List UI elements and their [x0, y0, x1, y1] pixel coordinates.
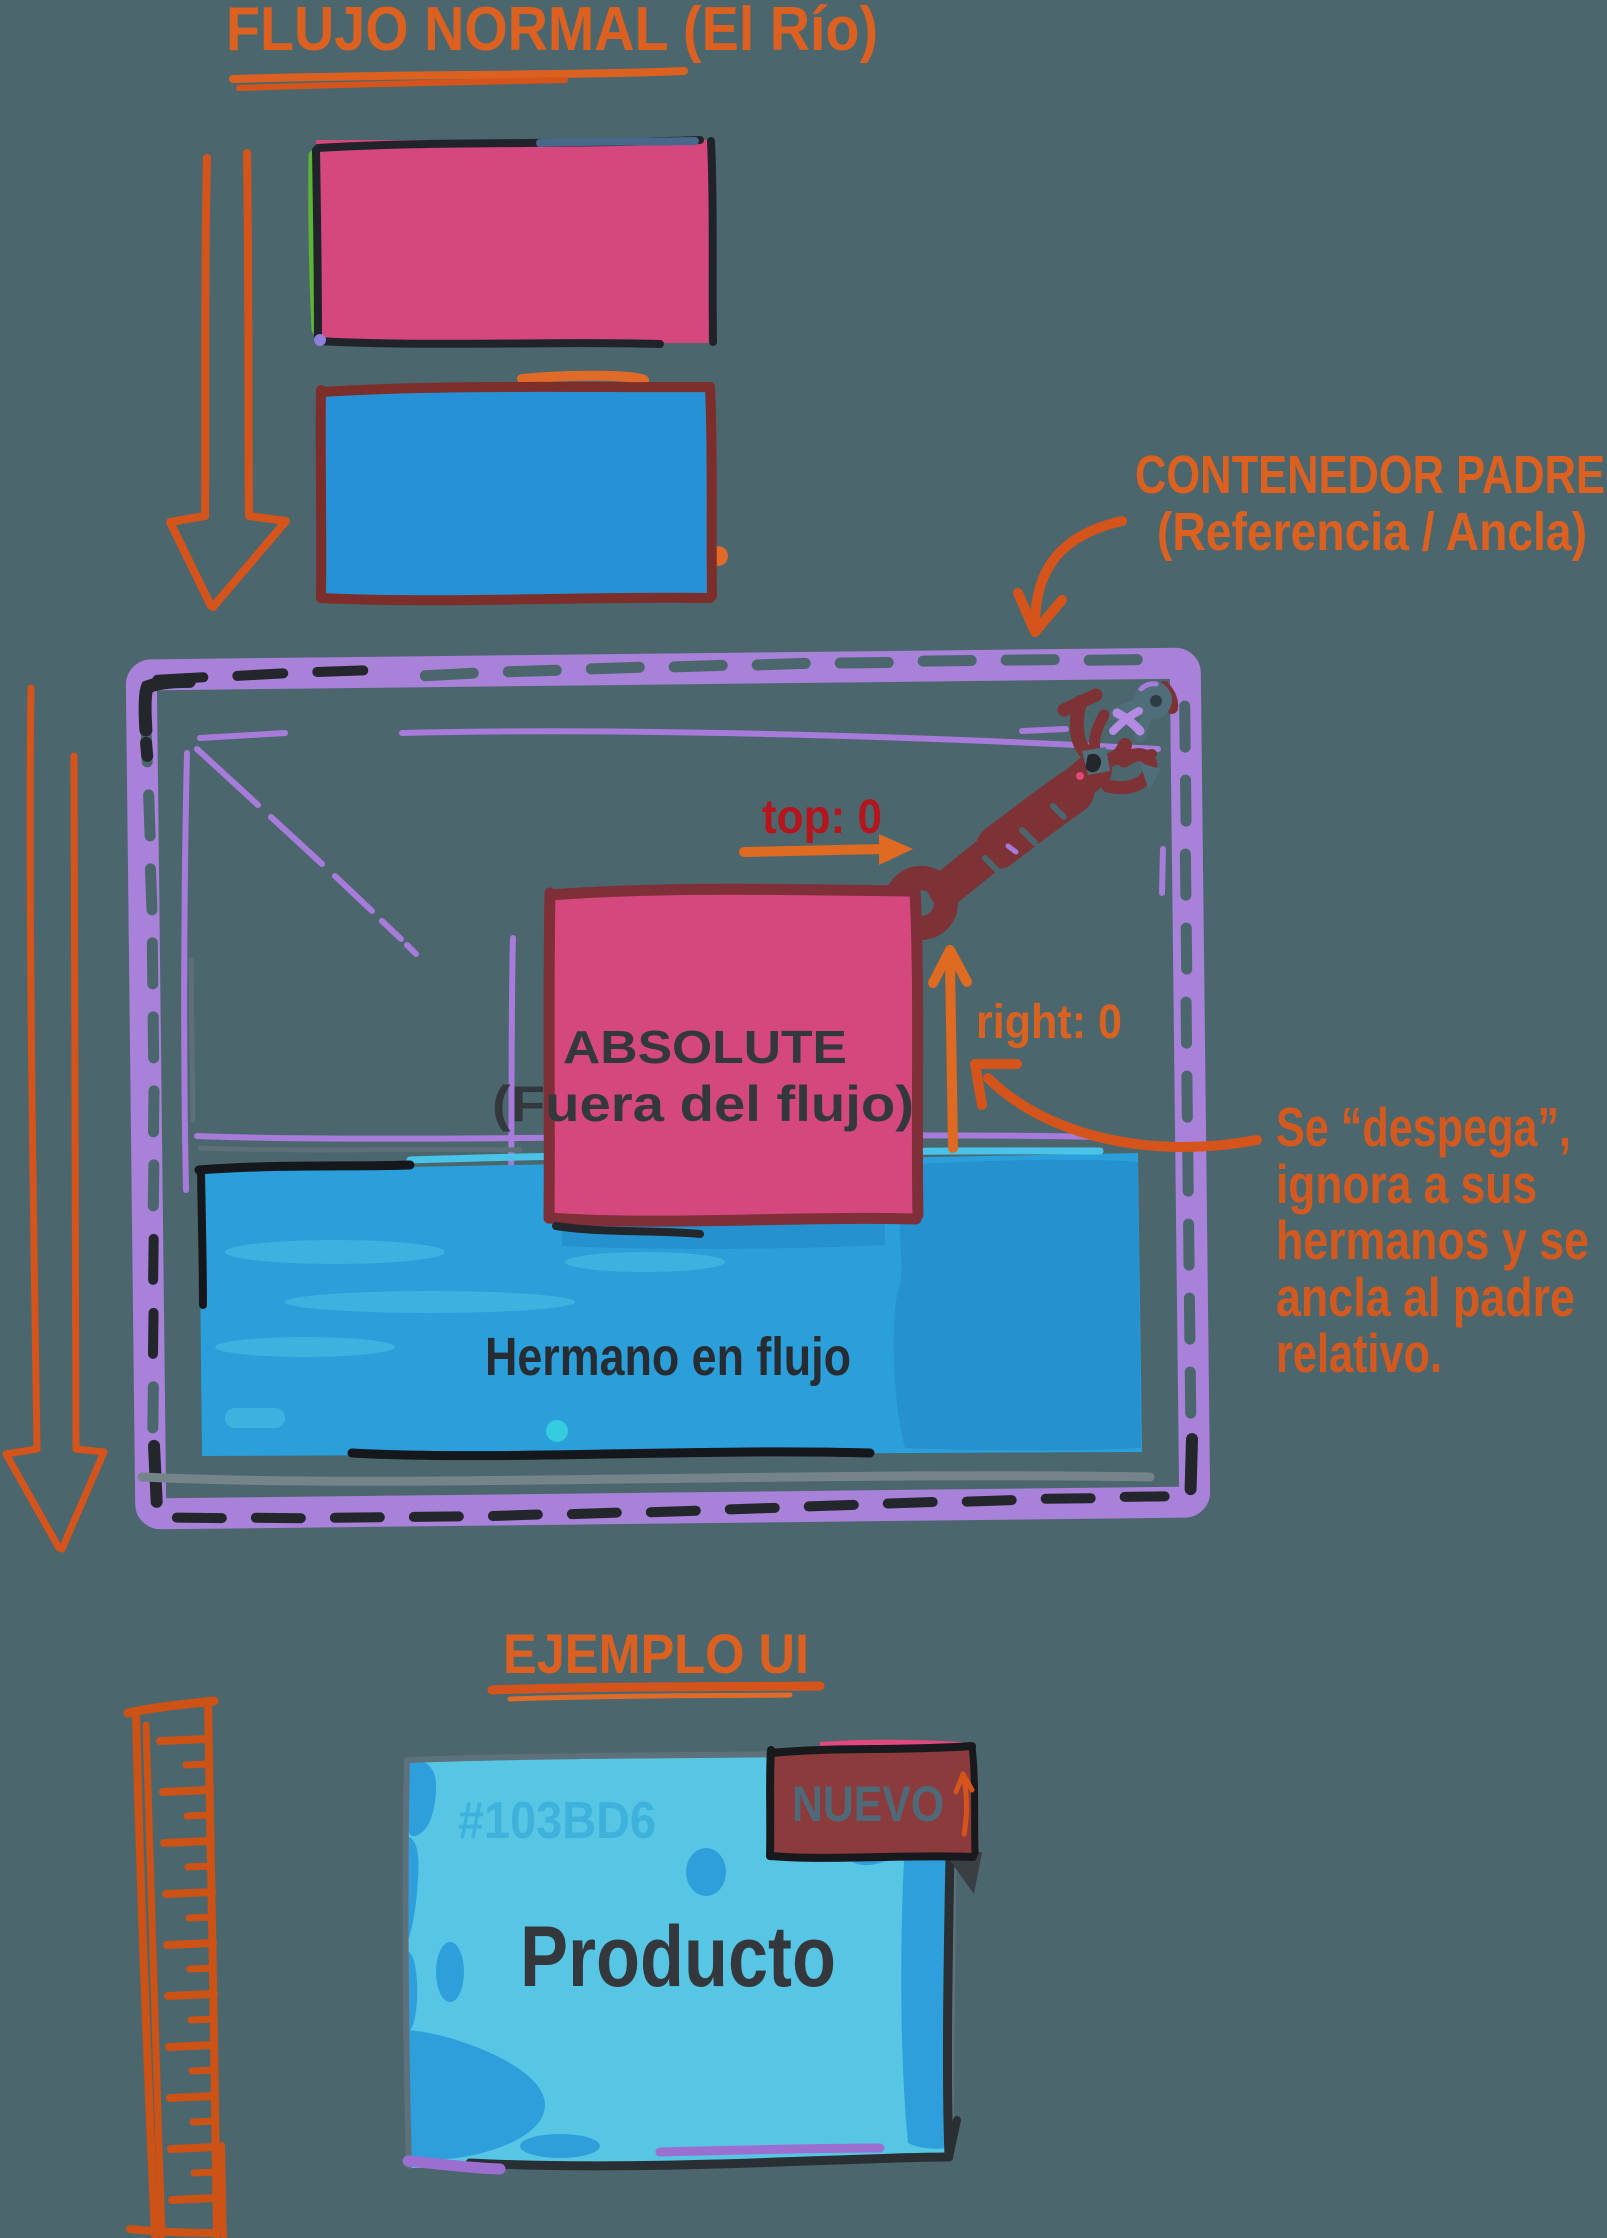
svg-text:Hermano en flujo: Hermano en flujo: [485, 1327, 851, 1387]
svg-text:Se “despega”,: Se “despega”,: [1276, 1096, 1571, 1158]
svg-text:hermanos y se: hermanos y se: [1276, 1209, 1589, 1271]
svg-text:Producto: Producto: [520, 1909, 836, 2005]
svg-text:EJEMPLO UI: EJEMPLO UI: [503, 1622, 809, 1685]
svg-text:FLUJO NORMAL (El Río): FLUJO NORMAL (El Río): [226, 0, 878, 64]
svg-text:#103BD6: #103BD6: [458, 1792, 656, 1850]
svg-text:right: 0: right: 0: [976, 996, 1122, 1049]
svg-text:CONTENEDOR PADRE: CONTENEDOR PADRE: [1135, 445, 1605, 505]
svg-text:ABSOLUTE: ABSOLUTE: [563, 1021, 847, 1073]
svg-text:ignora a sus: ignora a sus: [1276, 1153, 1537, 1215]
svg-text:NUEVO: NUEVO: [792, 1776, 944, 1832]
svg-text:relativo.: relativo.: [1276, 1322, 1442, 1384]
svg-text:ancla al padre: ancla al padre: [1276, 1266, 1575, 1328]
svg-text:(Referencia / Ancla): (Referencia / Ancla): [1157, 502, 1587, 562]
svg-text:top: 0: top: 0: [762, 791, 882, 844]
svg-text:(Fuera del flujo): (Fuera del flujo): [492, 1076, 914, 1132]
